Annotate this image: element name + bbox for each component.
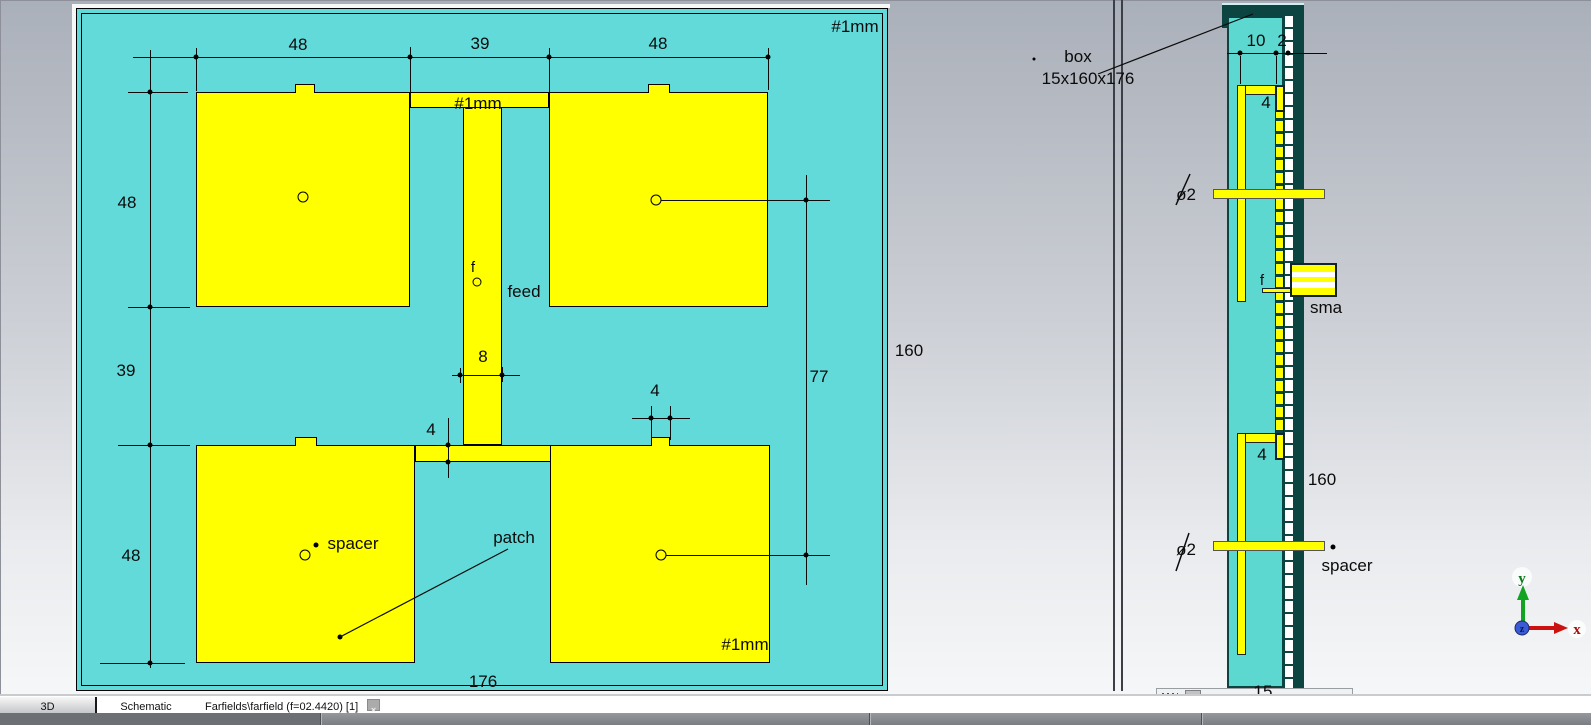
dim-label-4-top-side: 4 bbox=[1261, 94, 1270, 112]
box-label: box bbox=[1064, 48, 1091, 66]
side-board-dark-face bbox=[1293, 16, 1304, 688]
notch-top-left bbox=[295, 84, 315, 93]
viewport-splitter[interactable] bbox=[1113, 0, 1123, 691]
side-feed-end-bottom bbox=[1275, 433, 1285, 460]
dim-label-left-48b: 48 bbox=[122, 547, 141, 565]
dim-ext bbox=[128, 92, 188, 93]
side-spacer-rod-top bbox=[1213, 189, 1325, 199]
dim-ext bbox=[118, 445, 190, 446]
tab-3d[interactable]: 3D bbox=[0, 697, 97, 713]
feed-label: feed bbox=[507, 283, 540, 301]
notch-bottom-right bbox=[651, 437, 670, 446]
status-segment-left bbox=[0, 713, 320, 725]
sma-feed-pin bbox=[1262, 288, 1292, 293]
patch-label: patch bbox=[493, 529, 535, 547]
dim-ext bbox=[100, 663, 185, 664]
side-board-laminate-edge bbox=[1284, 16, 1293, 688]
thickness-label-feed: #1mm bbox=[454, 95, 501, 113]
dim-ext bbox=[128, 307, 190, 308]
dim-label-4-junction: 4 bbox=[426, 421, 435, 439]
dim-label-160-front: 160 bbox=[895, 342, 923, 360]
feed-bottom-bar bbox=[415, 445, 551, 462]
side-feed-end-top bbox=[1275, 85, 1285, 112]
tab-farfields[interactable]: Farfields\farfield (f=02.4420) [1] bbox=[205, 697, 358, 713]
spacer-hole-bottom-right bbox=[656, 550, 667, 561]
spacer-label-side: spacer bbox=[1321, 557, 1372, 575]
thickness-label-board: #1mm bbox=[831, 18, 878, 36]
side-box-top-cap bbox=[1222, 3, 1304, 16]
tab-schematic[interactable]: Schematic bbox=[100, 697, 192, 713]
spacer-anchor-dot-side bbox=[1331, 545, 1336, 550]
status-bar bbox=[0, 713, 1591, 725]
sma-connector bbox=[1290, 263, 1337, 297]
dim-label-top-39: 39 bbox=[471, 35, 490, 53]
spacer-hole-top-left bbox=[298, 192, 309, 203]
spacer-label-front: spacer bbox=[327, 535, 378, 553]
feed-point-label-side: f bbox=[1260, 273, 1264, 289]
dim-label-10: 10 bbox=[1247, 32, 1266, 50]
notch-bottom-left bbox=[295, 437, 317, 446]
status-separator bbox=[869, 713, 871, 725]
feed-point-label: f bbox=[471, 260, 475, 276]
dim-label-4-notch: 4 bbox=[650, 382, 659, 400]
spacer-hole-bottom-left bbox=[300, 550, 311, 561]
thickness-label-patch: #1mm bbox=[721, 636, 768, 654]
dim-line-77 bbox=[806, 175, 807, 585]
dim-label-77: 77 bbox=[810, 368, 829, 386]
spacer-anchor-dot bbox=[314, 543, 319, 548]
box-anchor-dot bbox=[1033, 58, 1036, 61]
dim-label-top-48b: 48 bbox=[649, 35, 668, 53]
dim-label-8: 8 bbox=[478, 348, 487, 366]
dim-label-160-side: 160 bbox=[1308, 471, 1336, 489]
diameter-label-top: ø2 bbox=[1176, 186, 1196, 204]
status-separator bbox=[1201, 713, 1203, 725]
sma-label: sma bbox=[1310, 299, 1342, 317]
dim-label-left-39: 39 bbox=[117, 362, 136, 380]
dim-label-2: 2 bbox=[1277, 32, 1286, 50]
dim-label-top-48a: 48 bbox=[289, 36, 308, 54]
dim-label-4-bottom-side: 4 bbox=[1257, 446, 1266, 464]
dim-label-left-48a: 48 bbox=[118, 194, 137, 212]
cad-window: 48 39 48 48 39 48 77 8 4 4 #1mm #1mm #1m… bbox=[0, 0, 1591, 725]
patch-leader-dot bbox=[338, 635, 343, 640]
side-feedline-dashed bbox=[1275, 95, 1284, 455]
box-size-label: 15x160x176 bbox=[1042, 70, 1135, 88]
feed-center-line bbox=[463, 108, 502, 445]
side-spacer-rod-bottom bbox=[1213, 541, 1325, 551]
notch-top-right bbox=[648, 84, 670, 93]
view-tab-bar: 3D Schematic Farfields\farfield (f=02.44… bbox=[0, 694, 1591, 713]
dim-label-176: 176 bbox=[469, 673, 497, 691]
tab-close-button[interactable]: × bbox=[367, 699, 380, 711]
diameter-label-bottom: ø2 bbox=[1176, 541, 1196, 559]
dim-line bbox=[150, 50, 151, 668]
status-separator bbox=[320, 713, 322, 725]
spacer-hole-top-right bbox=[651, 195, 662, 206]
feed-point-circle bbox=[473, 278, 482, 287]
dim-line bbox=[133, 57, 770, 58]
